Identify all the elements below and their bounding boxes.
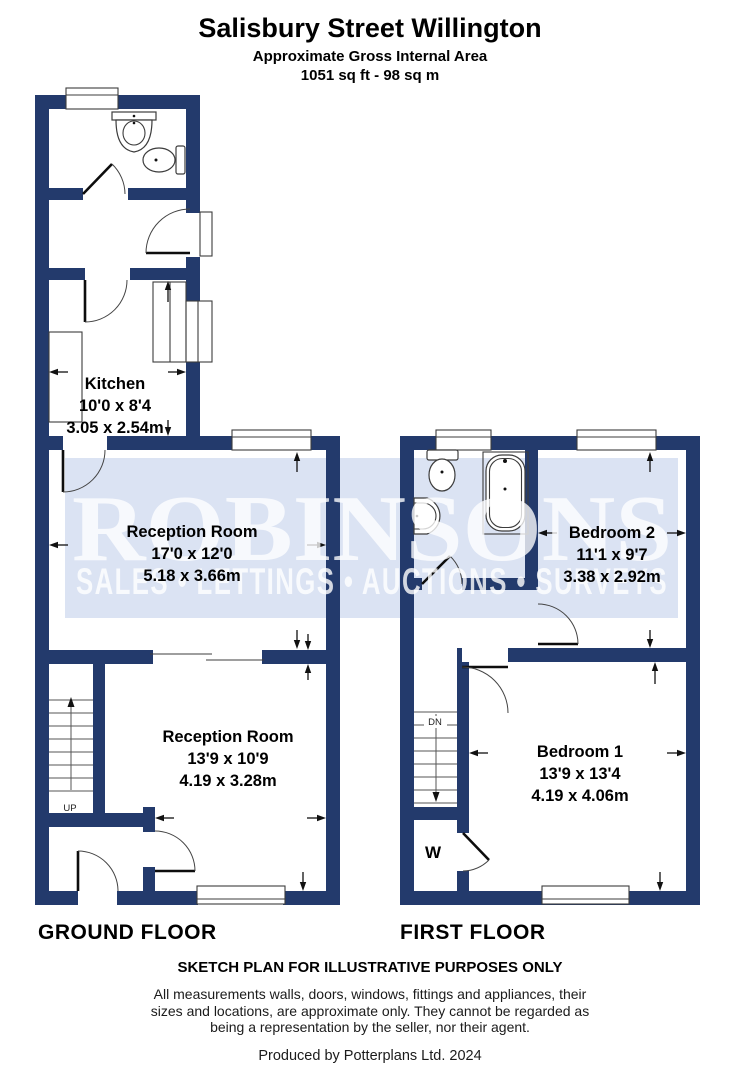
fine-print-line2: sizes and locations, are approximate onl… [0,1003,740,1020]
kitchen-imperial: 10'0 x 8'4 [79,397,152,415]
floorplan-drawing: ROBINSONS SALES • LETTINGS • AUCTIONS • … [0,0,740,1080]
reception-divider-opening [150,654,264,660]
kitchen-metric: 3.05 x 2.54m [66,419,163,437]
reception2-imperial: 13'9 x 10'9 [187,750,268,768]
bedroom1-label: Bedroom 1 [537,743,623,761]
bedroom1-imperial: 13'9 x 13'4 [539,765,621,783]
ground-floor-bathroom-fixtures [112,112,185,174]
kitchen-label: Kitchen [85,375,146,393]
fine-print-line1: All measurements walls, doors, windows, … [0,986,740,1003]
wardrobe-label: W [425,843,442,862]
fine-print: All measurements walls, doors, windows, … [0,986,740,1036]
stairs-down-label: DN [428,717,442,728]
reception2-metric: 4.19 x 3.28m [179,772,276,790]
side-door-opening [200,212,212,256]
bedroom1-metric: 4.19 x 4.06m [531,787,628,805]
bedroom2-label: Bedroom 2 [569,524,655,542]
reception1-label: Reception Room [126,523,257,541]
fine-print-line3: being a representation by the seller, no… [0,1019,740,1036]
reception1-metric: 5.18 x 3.66m [143,567,240,585]
first-floor-title: FIRST FLOOR [400,921,546,945]
produced-by: Produced by Potterplans Ltd. 2024 [0,1048,740,1064]
sketch-disclaimer: SKETCH PLAN FOR ILLUSTRATIVE PURPOSES ON… [0,959,740,976]
stairs-down-arrow [433,792,440,802]
stairs-up-arrow [68,697,75,707]
toilet-icon [176,146,185,174]
floorplan-page: Salisbury Street Willington Approximate … [0,0,740,1080]
bedroom2-metric: 3.38 x 2.92m [563,568,660,586]
reception1-imperial: 17'0 x 12'0 [151,545,232,563]
stairs-up-label: UP [63,803,76,814]
ground-floor-stairs [49,697,93,791]
reception2-label: Reception Room [162,728,293,746]
ground-floor-title: GROUND FLOOR [38,921,217,945]
bedroom2-imperial: 11'1 x 9'7 [576,546,647,564]
